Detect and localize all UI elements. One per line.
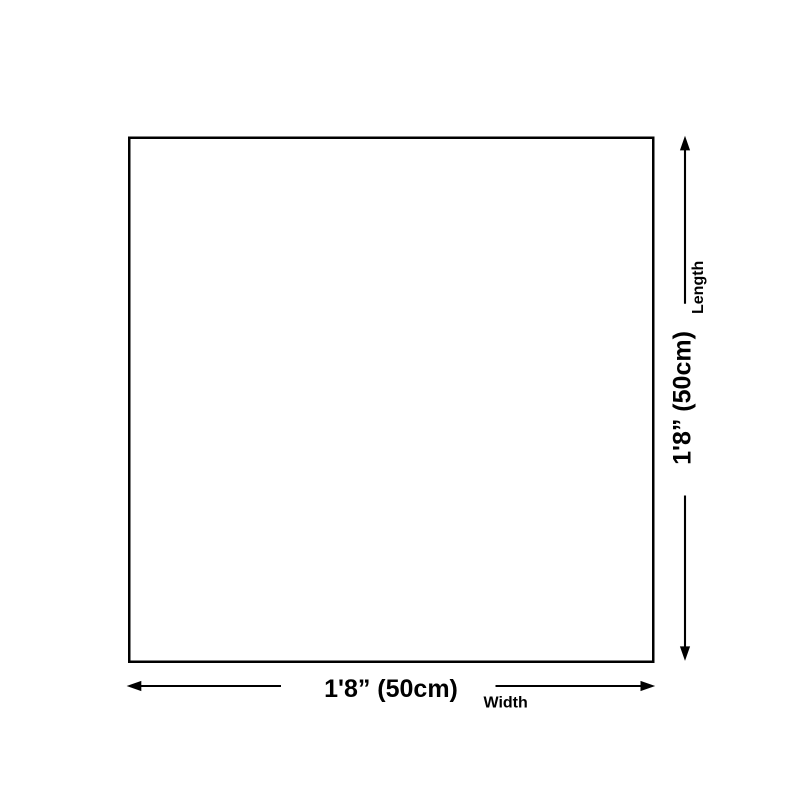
svg-text:Width: Width bbox=[484, 695, 528, 712]
svg-text:Length: Length bbox=[690, 261, 707, 314]
svg-text:1'8” (50cm): 1'8” (50cm) bbox=[324, 675, 458, 703]
svg-text:1'8” (50cm): 1'8” (50cm) bbox=[669, 331, 697, 465]
